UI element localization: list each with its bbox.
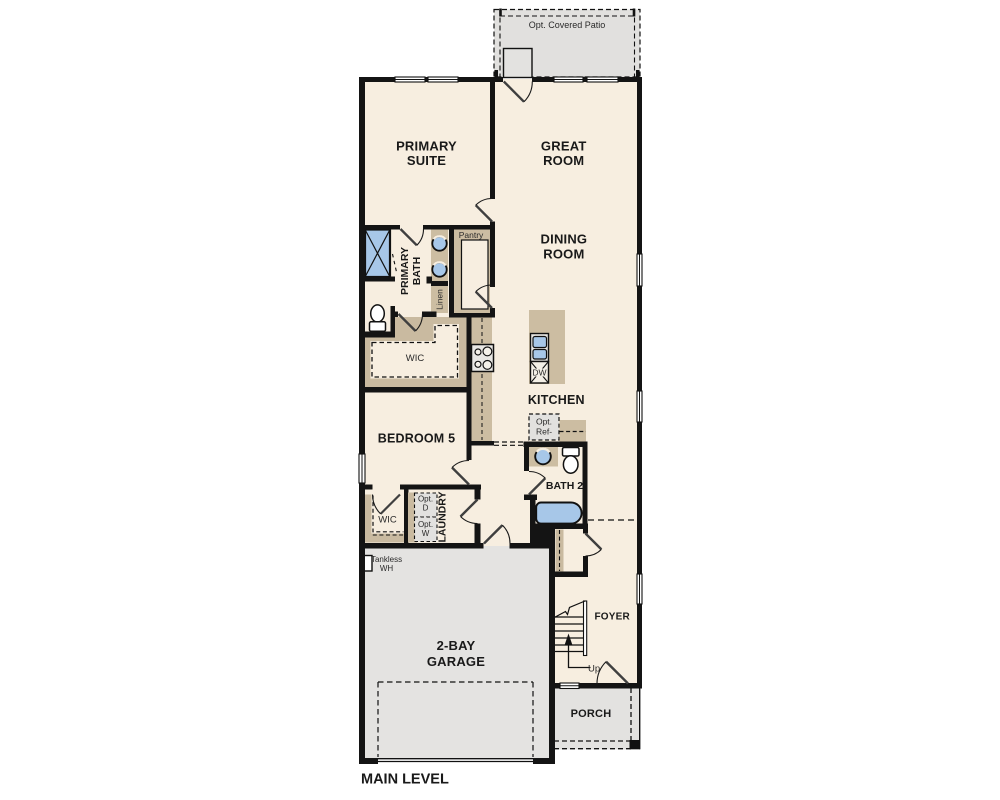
svg-text:Opt. Covered Patio: Opt. Covered Patio (529, 20, 606, 30)
svg-text:WIC: WIC (378, 515, 397, 526)
svg-text:KITCHEN: KITCHEN (528, 393, 585, 407)
svg-text:GARAGE: GARAGE (427, 654, 485, 669)
svg-text:Opt.: Opt. (536, 417, 552, 427)
svg-text:WIC: WIC (406, 353, 425, 364)
svg-text:Opt.: Opt. (418, 495, 433, 504)
svg-text:PORCH: PORCH (571, 708, 612, 720)
svg-text:PRIMARY: PRIMARY (399, 247, 411, 295)
svg-text:BATH: BATH (411, 257, 423, 285)
svg-text:Ref-: Ref- (536, 427, 552, 437)
svg-text:BEDROOM 5: BEDROOM 5 (378, 432, 456, 446)
svg-text:FOYER: FOYER (594, 612, 630, 623)
svg-text:GREAT: GREAT (541, 139, 587, 154)
svg-text:Opt.: Opt. (418, 520, 433, 529)
svg-text:ROOM: ROOM (543, 153, 584, 168)
svg-text:DINING: DINING (541, 232, 588, 247)
svg-text:MAIN LEVEL: MAIN LEVEL (361, 772, 449, 788)
svg-text:WH: WH (380, 564, 394, 573)
svg-text:ROOM: ROOM (543, 247, 584, 262)
svg-text:2-BAY: 2-BAY (437, 638, 476, 653)
svg-text:BATH 2: BATH 2 (546, 480, 583, 492)
svg-text:Pantry: Pantry (459, 230, 484, 240)
svg-text:W: W (422, 529, 430, 538)
svg-text:SUITE: SUITE (407, 153, 446, 168)
svg-text:DW: DW (532, 368, 546, 378)
svg-text:PRIMARY: PRIMARY (396, 139, 457, 154)
svg-text:Tankless: Tankless (371, 555, 402, 564)
svg-text:LAUNDRY: LAUNDRY (437, 492, 449, 543)
svg-text:D: D (423, 504, 429, 513)
svg-text:Linen: Linen (435, 289, 445, 310)
